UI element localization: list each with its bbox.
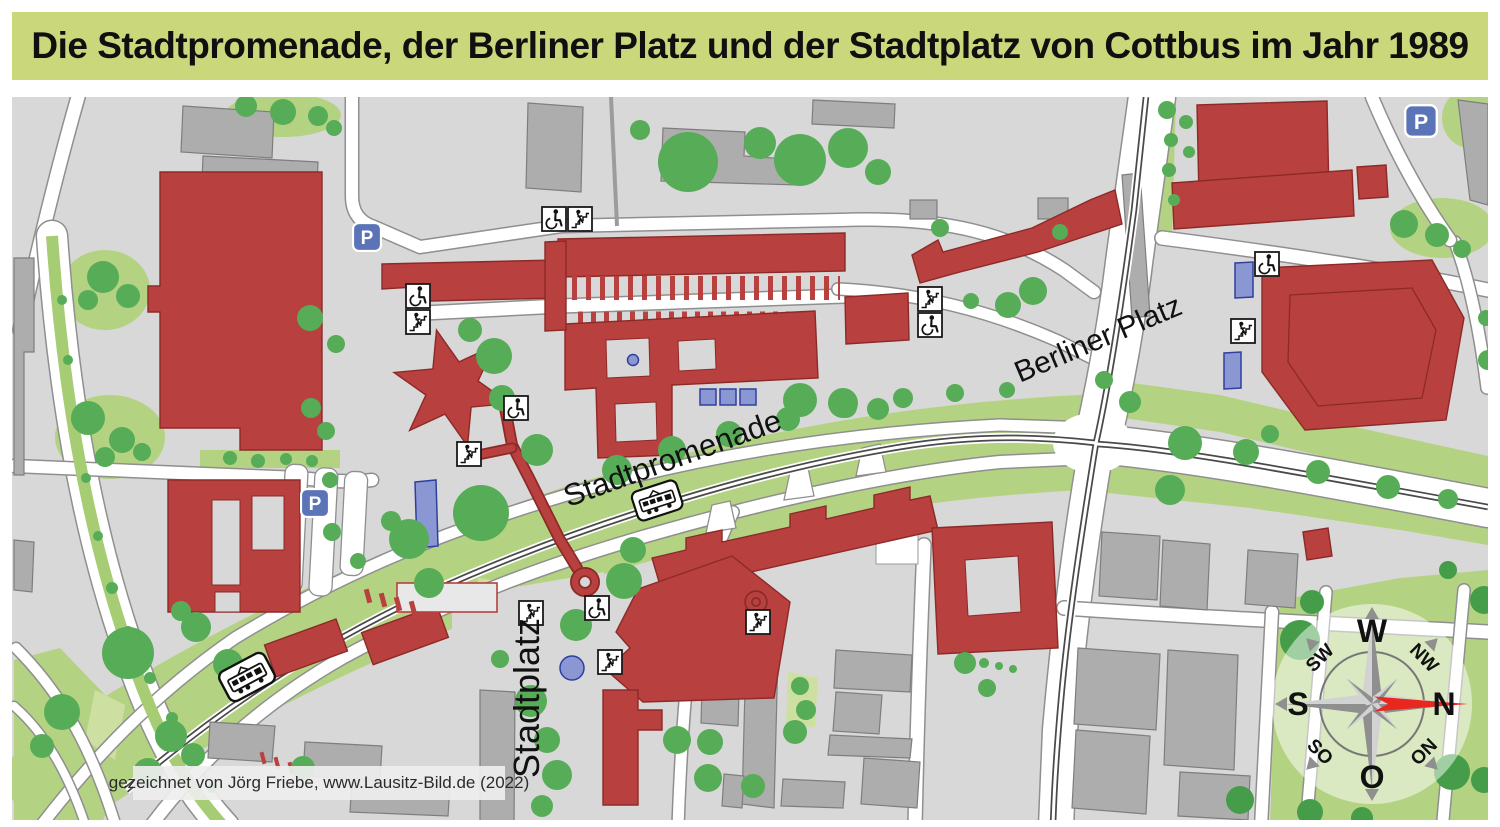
stairs-icon <box>1231 319 1255 343</box>
parking-icon <box>1405 105 1437 137</box>
blue-structure <box>740 389 756 405</box>
stairs-icon <box>746 610 770 634</box>
stairs-icon <box>568 207 592 231</box>
map-canvas: P <box>12 97 1488 820</box>
wheelchair-icon <box>1255 252 1279 276</box>
compass-n: N <box>1432 686 1455 722</box>
stairs-icon <box>406 310 430 334</box>
parking-icon <box>301 489 329 517</box>
parking-icon <box>353 223 381 251</box>
attribution-box: gezeichnet von Jörg Friebe, www.Lausitz-… <box>133 766 505 800</box>
compass-rose: W S N O NW SW SO ON <box>1272 604 1472 804</box>
attribution-text: gezeichnet von Jörg Friebe, www.Lausitz-… <box>109 773 530 793</box>
label-stadtplatz: Stadtplatz <box>506 618 547 778</box>
stairs-icon <box>918 287 942 311</box>
compass-o: O <box>1360 759 1385 795</box>
map-title: Die Stadtpromenade, der Berliner Platz u… <box>31 25 1468 67</box>
stairs-icon <box>457 442 481 466</box>
wheelchair-icon <box>542 207 566 231</box>
compass-s: S <box>1287 686 1308 722</box>
stairs-icon <box>598 650 622 674</box>
wheelchair-icon <box>585 596 609 620</box>
tram-platform <box>1235 262 1253 298</box>
fountain <box>628 355 639 366</box>
blue-structure <box>720 389 736 405</box>
title-banner: Die Stadtpromenade, der Berliner Platz u… <box>12 12 1488 80</box>
tram-platform <box>1224 352 1241 389</box>
hall-building <box>1262 260 1464 430</box>
wheelchair-icon <box>504 396 528 420</box>
blue-structure <box>700 389 716 405</box>
wheelchair-icon <box>918 313 942 337</box>
compass-w: W <box>1357 613 1388 649</box>
city-map-page: Die Stadtpromenade, der Berliner Platz u… <box>0 0 1500 827</box>
stadthalle-building <box>148 172 322 450</box>
fountain <box>560 656 584 680</box>
wheelchair-icon <box>406 284 430 308</box>
